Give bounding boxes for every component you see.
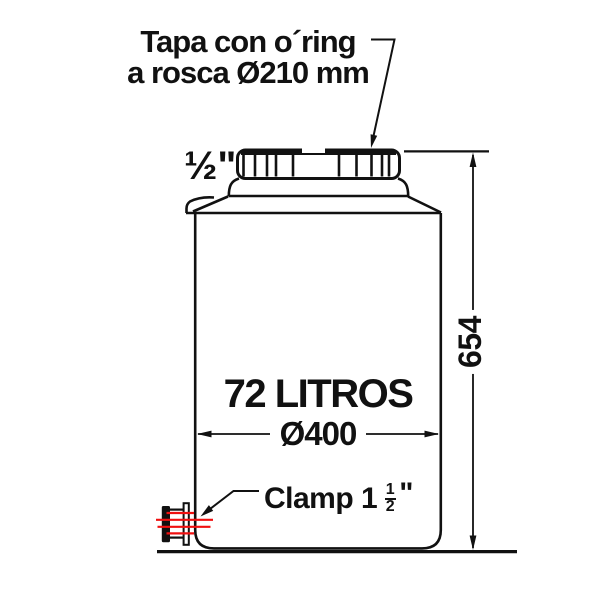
port-size-label: ½" [184, 146, 236, 186]
clamp-unit-mark: " [399, 483, 413, 505]
diameter-arrow-right-icon [425, 431, 440, 438]
height-label: 654 [454, 310, 486, 374]
shoulder-right [408, 197, 441, 213]
diameter-label: Ø400 [238, 416, 398, 451]
clamp-label: Clamp 1 1 2 " [264, 483, 413, 515]
clamp-fraction: 1 2 [382, 483, 398, 514]
height-arrow-up-icon [470, 153, 477, 168]
cap-notch [302, 149, 325, 154]
clamp-flange [162, 506, 170, 542]
diameter-arrow-left-icon [197, 431, 212, 438]
title-line-2: a rosca Ø210 mm [95, 57, 401, 88]
technical-drawing-canvas: Tapa con o´ring a rosca Ø210 mm ½" 72 LI… [0, 0, 600, 600]
clamp-label-prefix: Clamp 1 [264, 483, 377, 515]
drawing-title: Tapa con o´ring a rosca Ø210 mm [95, 26, 401, 88]
cap-leader-arrow-icon [371, 134, 378, 148]
clamp-fraction-denominator: 2 [386, 500, 395, 515]
clamp-backing-plate [184, 503, 189, 545]
neck-right-curve [398, 179, 408, 197]
height-arrow-down-icon [470, 536, 477, 551]
title-line-1: Tapa con o´ring [95, 26, 401, 57]
capacity-label: 72 LITROS [193, 377, 443, 411]
diameter-value: Ø400 [270, 415, 367, 452]
